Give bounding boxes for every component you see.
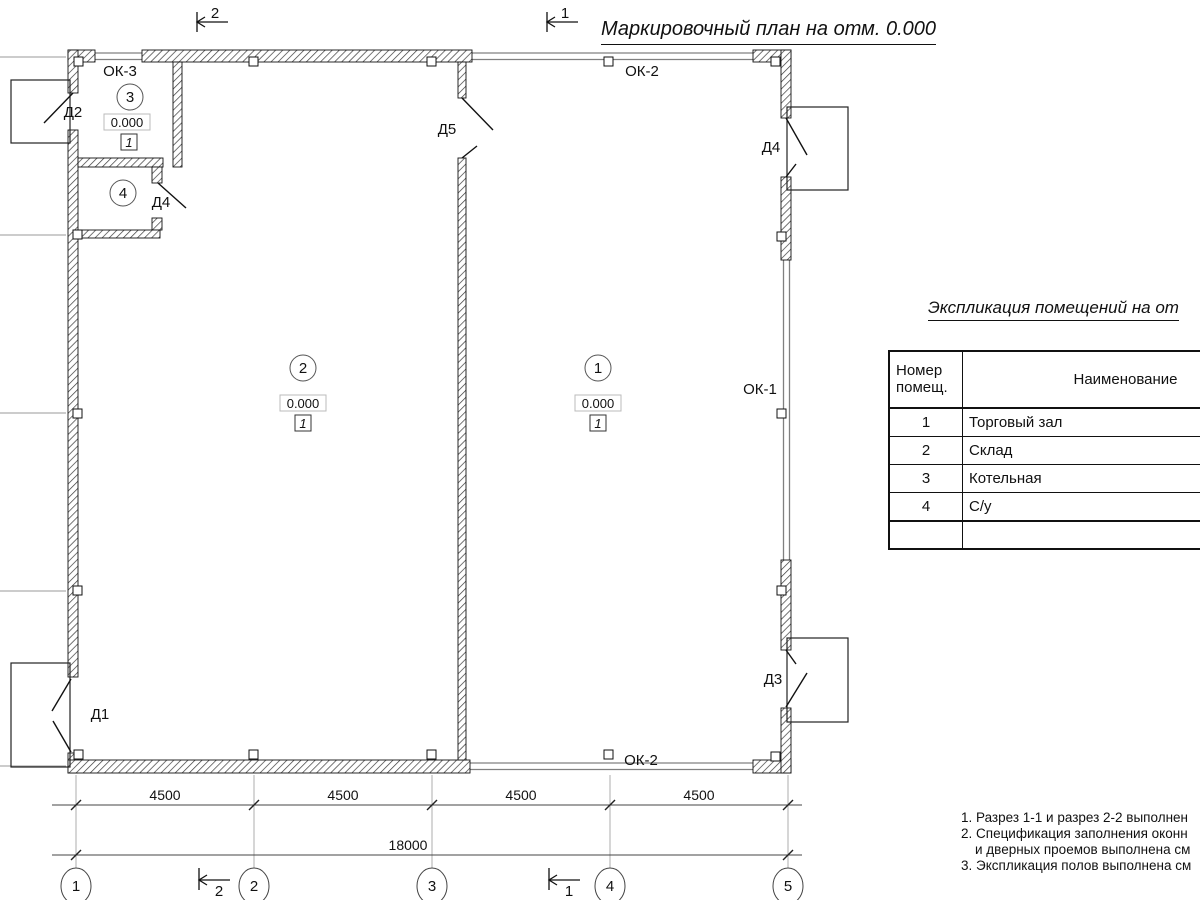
door-d1-label: Д1 <box>91 706 110 723</box>
section-1-top-number: 1 <box>561 5 569 22</box>
window-ok2-bottom-label: ОК-2 <box>624 752 658 769</box>
header-line-1: Номер <box>896 362 942 379</box>
window-glazing-lines <box>95 53 790 770</box>
door-d5-leaf <box>462 146 477 158</box>
room-2-number: 2 <box>299 360 307 377</box>
door-d1-leaf <box>52 679 71 711</box>
room-2-floor-type: 1 <box>299 416 306 431</box>
dim-4500-2: 4500 <box>327 787 358 803</box>
room-3-number: 3 <box>126 89 134 106</box>
grid-axis-bubbles: 1 2 3 4 5 <box>61 868 803 900</box>
axis-number-4: 4 <box>606 878 614 895</box>
room-number-cell: 4 <box>889 493 963 522</box>
door-d1-leaf <box>53 721 71 752</box>
room-number-cell: 1 <box>889 408 963 437</box>
room-1-floor-type: 1 <box>594 416 601 431</box>
door-d4-room-label: Д4 <box>152 194 171 211</box>
section-2-top-number: 2 <box>211 5 219 22</box>
drawing-sheet: 2 0.000 1 1 0.000 1 3 0.000 1 4 Д2 <box>0 0 1200 900</box>
empty-cell <box>889 521 963 549</box>
window-ok1-label: ОК-1 <box>743 381 777 398</box>
door-d4-exit-leaf <box>786 118 807 155</box>
door-leaves <box>44 93 807 752</box>
door-d4-exit-label: Д4 <box>762 139 781 156</box>
table-row: 1 Торговый зал <box>889 408 1200 437</box>
room-1-elevation: 0.000 <box>582 396 615 411</box>
axis-number-5: 5 <box>784 878 792 895</box>
door-d3-label: Д3 <box>764 671 783 688</box>
porches <box>11 80 848 767</box>
section-2-bottom-number: 2 <box>215 883 223 900</box>
dimension-block: 4500 4500 4500 4500 18000 <box>52 775 802 868</box>
column-header-room-number: Номер помещ. <box>889 351 963 408</box>
page-title: Маркировочный план на отм. 0.000 <box>601 18 936 45</box>
table-row-empty <box>889 521 1200 549</box>
dim-4500-4: 4500 <box>683 787 714 803</box>
dim-4500-1: 4500 <box>149 787 180 803</box>
axis-number-1: 1 <box>72 878 80 895</box>
witness-lines <box>76 775 788 868</box>
note-line: 1. Разрез 1-1 и разрез 2-2 выполнен <box>961 810 1191 826</box>
empty-cell <box>963 521 1200 549</box>
room-name-cell: Склад <box>963 437 1200 465</box>
room-2-elevation: 0.000 <box>287 396 320 411</box>
window-ok2-top-label: ОК-2 <box>625 63 659 80</box>
explication-table: Номер помещ. Наименование 1 Торговый зал… <box>888 350 1200 550</box>
room-3-elevation: 0.000 <box>111 115 144 130</box>
header-line-2: помещ. <box>896 379 948 396</box>
walls <box>68 50 791 773</box>
explication-title: Экспликация помещений на от <box>928 298 1179 321</box>
window-ok3-label: ОК-3 <box>103 63 137 80</box>
column-header-name: Наименование <box>963 351 1200 408</box>
table-row: 4 С/у <box>889 493 1200 522</box>
door-d5-leaf <box>462 98 493 130</box>
door-d5-label: Д5 <box>438 121 457 138</box>
note-line: 2. Спецификация заполнения оконн <box>961 826 1191 842</box>
room-4-number: 4 <box>119 185 127 202</box>
door-d2-label: Д2 <box>64 104 83 121</box>
room-name-cell: Торговый зал <box>963 408 1200 437</box>
dim-total-18000: 18000 <box>389 837 428 853</box>
dim-4500-3: 4500 <box>505 787 536 803</box>
axis-number-2: 2 <box>250 878 258 895</box>
room-1-number: 1 <box>594 360 602 377</box>
section-1-bottom-number: 1 <box>565 883 573 900</box>
note-line: и дверных проемов выполнена см <box>961 842 1191 858</box>
note-line: 3. Экспликация полов выполнена см <box>961 858 1191 874</box>
room-number-cell: 2 <box>889 437 963 465</box>
room-name-cell: Котельная <box>963 465 1200 493</box>
table-header-row: Номер помещ. Наименование <box>889 351 1200 408</box>
room-number-cell: 3 <box>889 465 963 493</box>
table-row: 2 Склад <box>889 437 1200 465</box>
room-name-cell: С/у <box>963 493 1200 522</box>
opening-labels: Д2 Д1 Д5 Д4 Д4 Д3 ОК-3 ОК-2 ОК-2 ОК-1 <box>64 63 783 769</box>
door-d3-leaf <box>786 673 807 707</box>
axis-number-3: 3 <box>428 878 436 895</box>
table-row: 3 Котельная <box>889 465 1200 493</box>
row-grid-stubs <box>0 57 66 766</box>
general-notes: 1. Разрез 1-1 и разрез 2-2 выполнен 2. С… <box>961 810 1191 874</box>
room-3-floor-type: 1 <box>125 135 132 150</box>
